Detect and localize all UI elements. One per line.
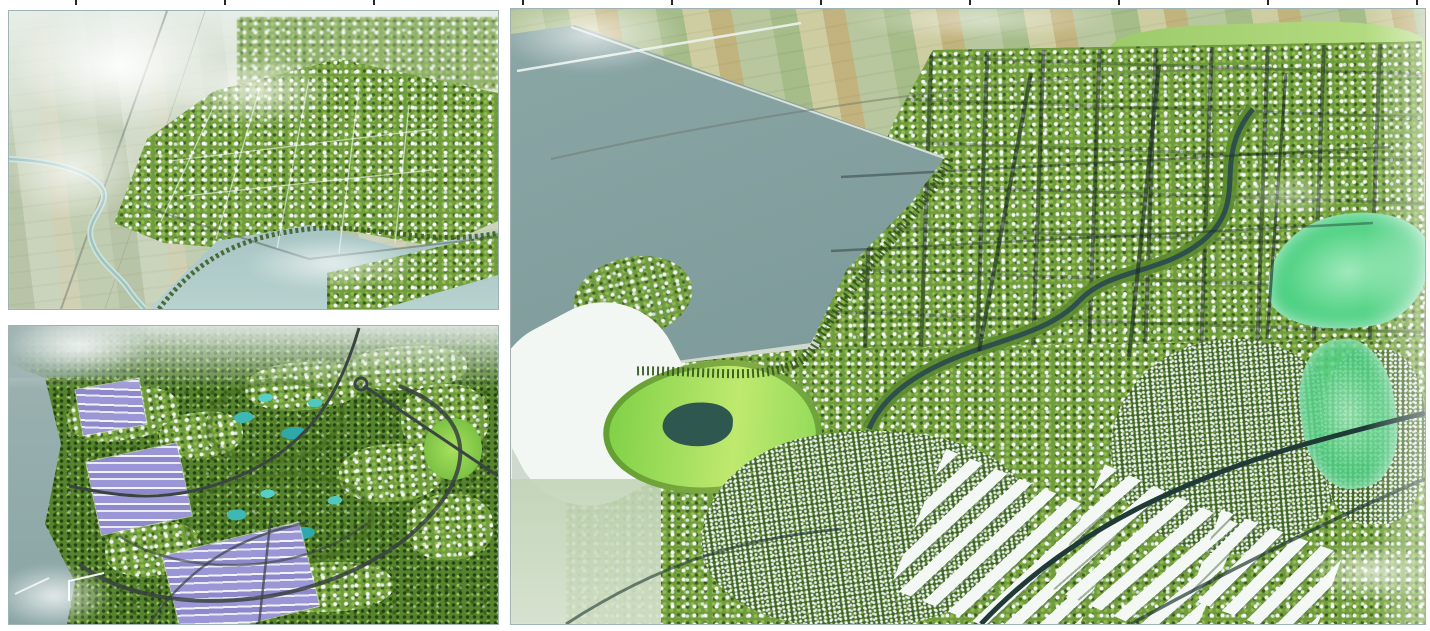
edge-tick-mark	[522, 0, 524, 5]
panel-bottom-left-render	[8, 325, 499, 625]
edge-tick-mark	[820, 0, 822, 5]
panel-top-left-render	[8, 10, 499, 310]
edge-tick-mark	[969, 0, 971, 5]
marsh-fields	[511, 479, 661, 624]
masterplan-board: { "figure": { "alt": "Board of three aer…	[0, 0, 1430, 631]
edge-tick-mark	[373, 0, 375, 5]
edge-tick-mark	[75, 0, 77, 5]
edge-tick-mark	[1267, 0, 1269, 5]
edge-tick-mark	[224, 0, 226, 5]
edge-tick-mark	[1118, 0, 1120, 5]
edge-tick-mark	[1416, 0, 1418, 5]
panel-right-render	[510, 8, 1426, 625]
park-pond	[662, 400, 734, 448]
distant-water	[9, 326, 149, 378]
edge-tick-mark	[671, 0, 673, 5]
east-green-park	[424, 418, 482, 480]
